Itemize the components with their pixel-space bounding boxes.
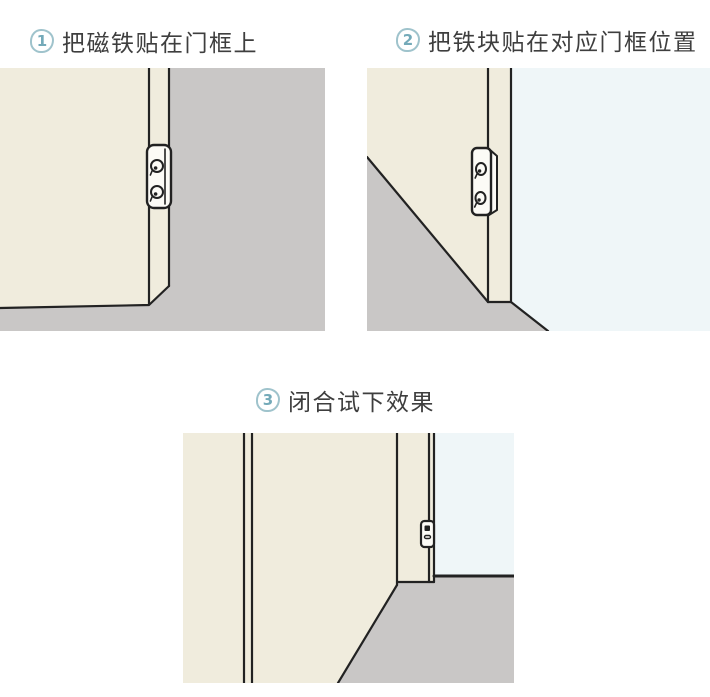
step-1-label: 把磁铁贴在门框上	[62, 24, 258, 58]
iron-plate	[472, 148, 497, 215]
engaged-catch-plate	[421, 521, 434, 547]
step-3-number: 3	[263, 393, 273, 408]
step-3-number-badge: 3	[256, 388, 280, 412]
step-3-label: 闭合试下效果	[288, 383, 435, 417]
catch-plate-body	[421, 521, 434, 547]
step-1-header: 1 把磁铁贴在门框上	[30, 24, 258, 58]
door-frame-face	[0, 68, 169, 308]
illustration-step-2	[367, 68, 710, 331]
illustration-step-1	[0, 68, 325, 331]
step-2-number: 2	[403, 33, 413, 48]
step-2-label: 把铁块贴在对应门框位置	[428, 23, 698, 57]
magnet-plate	[147, 145, 171, 208]
illustration-step-3	[183, 433, 514, 683]
wall-background	[434, 433, 514, 576]
catch-plate-magnet-mark	[425, 526, 431, 532]
step-1-number: 1	[37, 34, 47, 49]
door-magnet-installation-guide: 1 把磁铁贴在门框上 2 把铁块贴在对应门框位置 3 闭合试下效果	[0, 0, 710, 697]
step-1-number-badge: 1	[30, 29, 54, 53]
step-3-header: 3 闭合试下效果	[256, 383, 435, 417]
step-2-header: 2 把铁块贴在对应门框位置	[396, 23, 698, 57]
step-2-number-badge: 2	[396, 28, 420, 52]
